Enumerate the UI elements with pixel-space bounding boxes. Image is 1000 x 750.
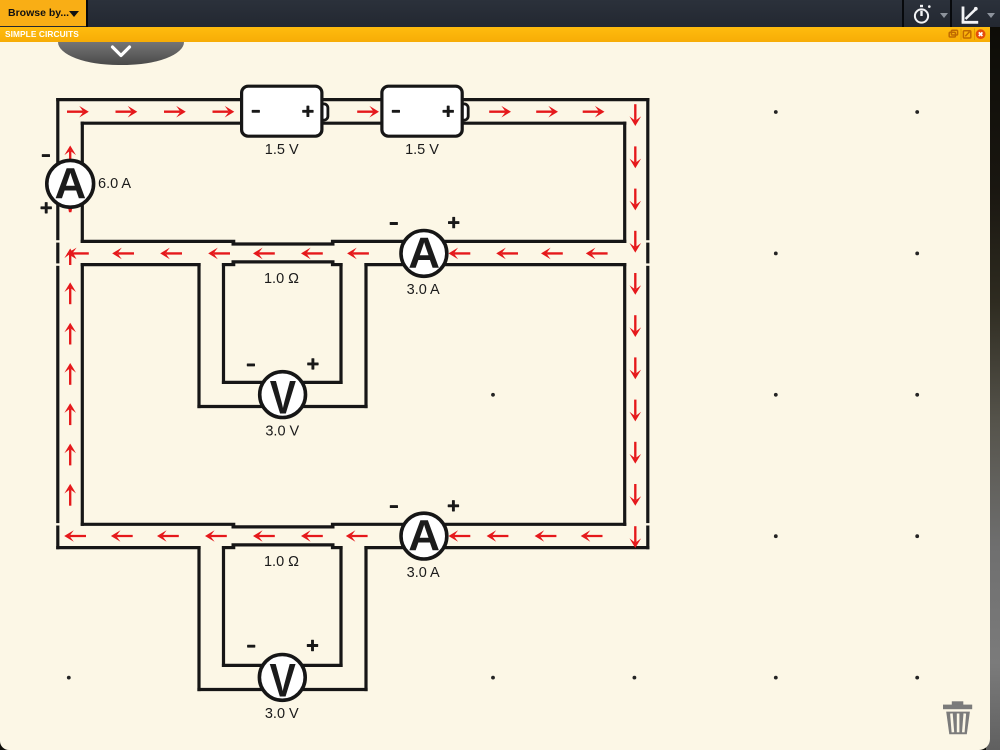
svg-text:1.0 Ω: 1.0 Ω xyxy=(264,554,299,570)
svg-text:3.0 A: 3.0 A xyxy=(407,282,440,298)
svg-text:V: V xyxy=(270,372,296,424)
svg-text:A: A xyxy=(55,159,87,208)
svg-text:3.0 V: 3.0 V xyxy=(265,423,299,439)
svg-text:1.5 V: 1.5 V xyxy=(265,142,299,158)
svg-text:6.0 A: 6.0 A xyxy=(98,176,131,192)
svg-text:1.0 Ω: 1.0 Ω xyxy=(264,271,299,287)
svg-text:A: A xyxy=(408,229,440,278)
svg-text:3.0 V: 3.0 V xyxy=(265,706,299,722)
svg-text:V: V xyxy=(269,655,295,707)
svg-text:A: A xyxy=(408,511,440,560)
svg-text:3.0 A: 3.0 A xyxy=(407,565,440,581)
svg-text:1.5 V: 1.5 V xyxy=(405,142,439,158)
